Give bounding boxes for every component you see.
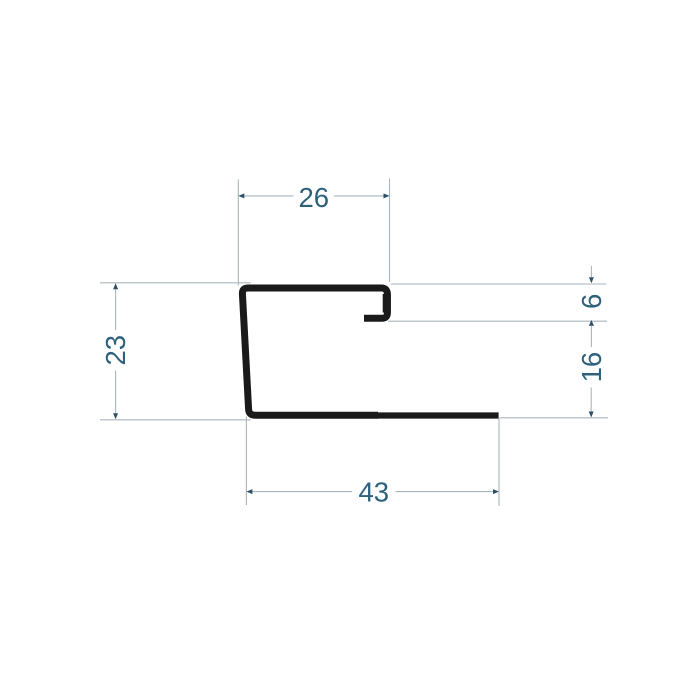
svg-text:23: 23 [100,335,131,366]
svg-text:16: 16 [576,352,607,383]
svg-text:6: 6 [576,294,607,309]
svg-text:43: 43 [359,476,390,507]
svg-text:26: 26 [299,182,330,213]
